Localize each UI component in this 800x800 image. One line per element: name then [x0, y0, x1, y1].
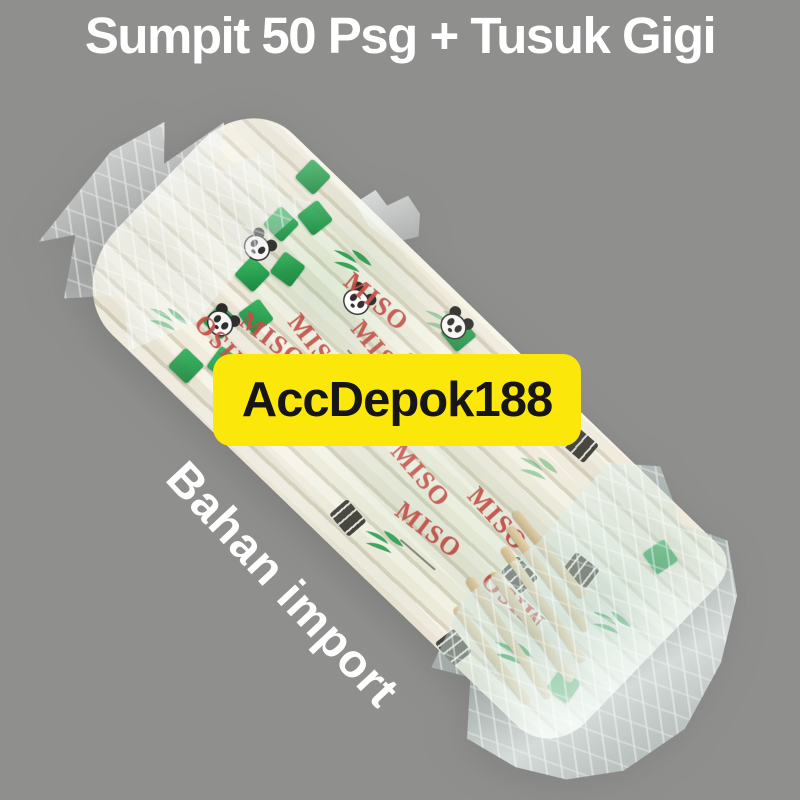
bamboo-leaf-icon — [139, 293, 193, 347]
seal-stamp-icon — [435, 628, 472, 666]
green-band — [546, 668, 582, 704]
green-band — [642, 539, 678, 575]
green-band — [295, 158, 332, 195]
panda-icon — [431, 300, 479, 348]
bamboo-leaf-icon — [414, 295, 468, 349]
bare-chopstick — [452, 604, 531, 705]
panda-icon — [235, 222, 283, 270]
bamboo-leaf-icon — [582, 596, 636, 650]
miso-brand-text: MISO — [474, 564, 550, 637]
bare-chopstick — [465, 575, 554, 700]
bare-chopstick — [500, 545, 588, 665]
seller-badge-text: AccDepok188 — [242, 372, 552, 428]
panda-icon — [198, 297, 246, 345]
miso-brand-text: MISO — [461, 481, 534, 557]
bare-chopstick — [511, 509, 587, 600]
green-band — [234, 256, 271, 293]
seal-stamp-icon — [500, 556, 538, 594]
green-band — [238, 298, 274, 334]
green-band — [440, 316, 477, 353]
seal-stamp-icon — [329, 499, 367, 537]
sleeve-fine-print — [400, 539, 436, 571]
bamboo-leaf-icon — [355, 515, 409, 569]
seller-badge: AccDepok188 — [213, 354, 581, 446]
page-title: Sumpit 50 Psg + Tusuk Gigi — [0, 6, 800, 65]
green-band — [263, 206, 300, 243]
green-band — [168, 347, 205, 384]
bamboo-leaf-icon — [509, 442, 563, 496]
miso-brand-text: MISO — [389, 496, 467, 565]
green-band — [297, 200, 333, 236]
bamboo-leaf-icon — [323, 234, 377, 288]
panda-icon — [334, 276, 382, 324]
miso-brand-text: MISO — [338, 266, 415, 337]
green-band — [269, 251, 305, 287]
seal-stamp-icon — [562, 552, 600, 589]
miso-brand-text: MISO — [384, 437, 456, 514]
green-band — [202, 303, 239, 340]
product-photo-card: Sumpit 50 Psg + Tusuk Gigi — [0, 0, 800, 800]
bare-chopstick — [489, 570, 576, 685]
bare-chopstick — [505, 524, 590, 633]
bamboo-leaf-icon — [484, 626, 538, 680]
